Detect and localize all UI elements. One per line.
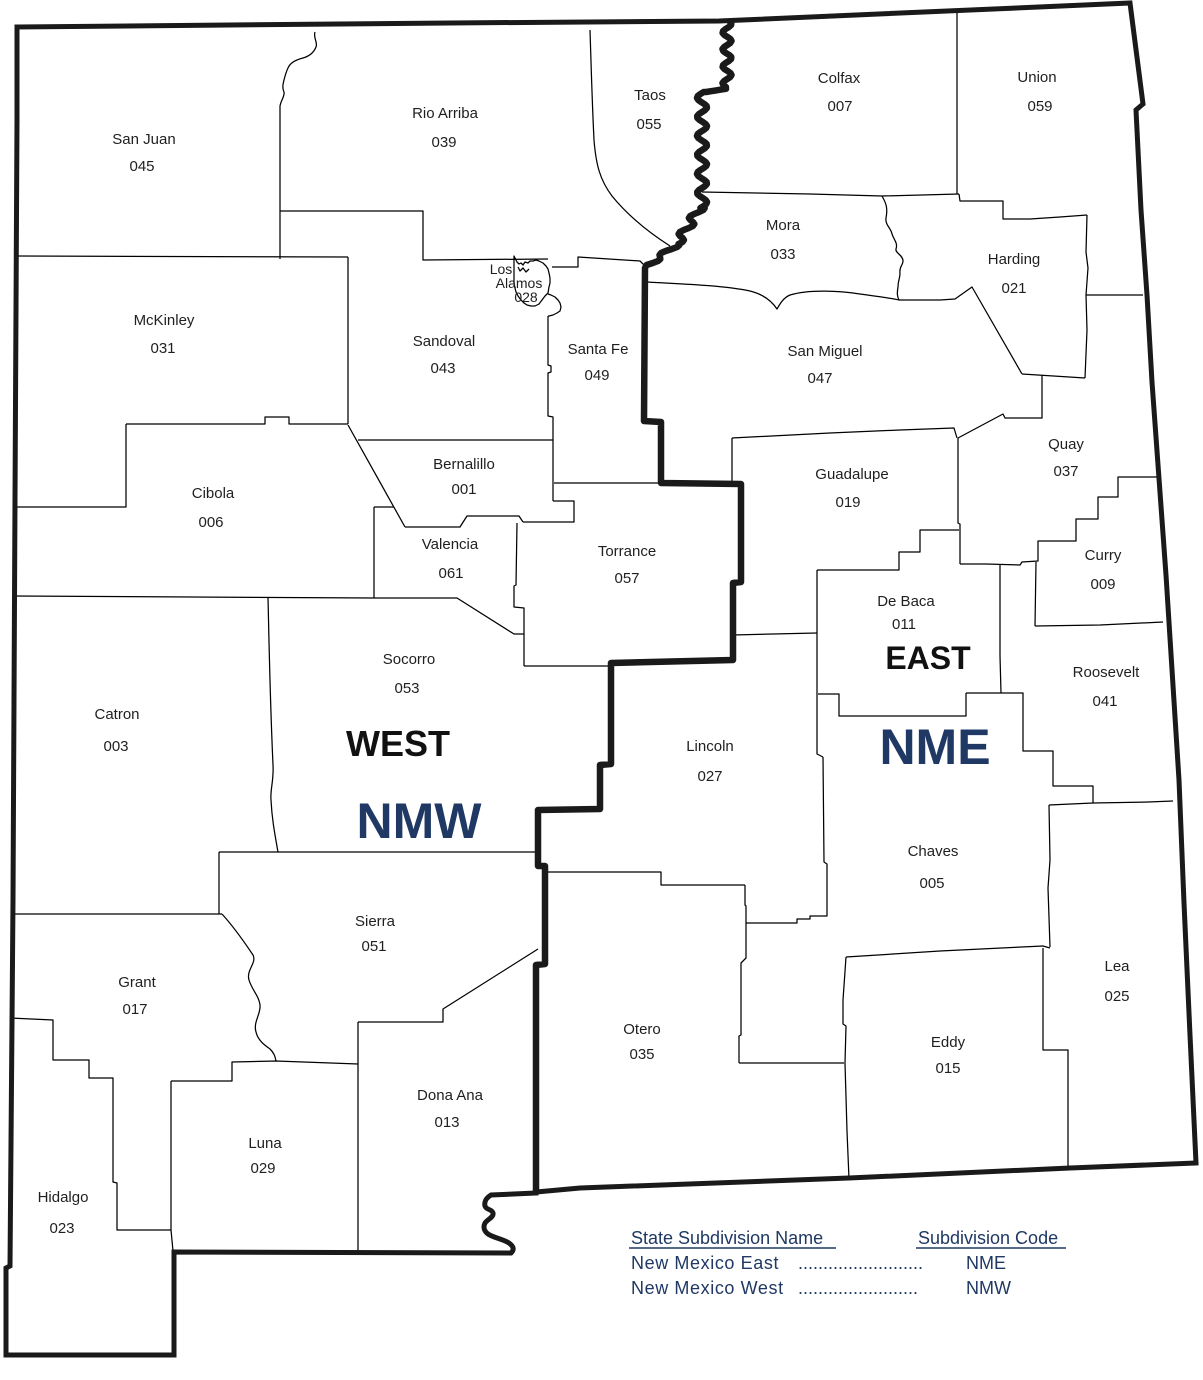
svg-text:Union: Union: [1017, 69, 1056, 86]
svg-text:017: 017: [122, 1001, 147, 1018]
svg-text:035: 035: [629, 1046, 654, 1063]
svg-text:055: 055: [636, 116, 661, 133]
svg-text:Hidalgo: Hidalgo: [38, 1189, 89, 1206]
svg-text:NME: NME: [966, 1253, 1006, 1273]
svg-text:Colfax: Colfax: [818, 70, 861, 87]
svg-text:025: 025: [1104, 988, 1129, 1005]
svg-text:023: 023: [49, 1220, 74, 1237]
svg-text:Otero: Otero: [623, 1021, 661, 1038]
svg-text:New Mexico East: New Mexico East: [631, 1253, 779, 1273]
svg-text:Torrance: Torrance: [598, 543, 656, 560]
svg-text:005: 005: [919, 875, 944, 892]
svg-text:049: 049: [584, 367, 609, 384]
svg-text:011: 011: [892, 616, 916, 633]
svg-text:Quay: Quay: [1048, 436, 1084, 453]
svg-text:State Subdivision Name: State Subdivision Name: [631, 1228, 823, 1248]
svg-text:Valencia: Valencia: [422, 536, 479, 553]
svg-text:053: 053: [394, 680, 419, 697]
svg-text:Harding: Harding: [988, 251, 1041, 268]
svg-text:001: 001: [451, 481, 476, 498]
svg-text:003: 003: [103, 738, 128, 755]
svg-text:021: 021: [1001, 280, 1026, 297]
svg-text:006: 006: [198, 514, 223, 531]
svg-text:Sierra: Sierra: [355, 913, 396, 930]
svg-text:Eddy: Eddy: [931, 1034, 966, 1051]
svg-text:Lea: Lea: [1104, 958, 1130, 975]
svg-text:Sandoval: Sandoval: [413, 333, 476, 350]
svg-text:San Miguel: San Miguel: [787, 343, 862, 360]
svg-text:NMW: NMW: [357, 793, 483, 849]
svg-text:045: 045: [129, 158, 154, 175]
svg-text:New Mexico West: New Mexico West: [631, 1278, 784, 1298]
svg-text:027: 027: [697, 768, 722, 785]
svg-text:Subdivision Code: Subdivision Code: [918, 1228, 1058, 1248]
svg-text:McKinley: McKinley: [134, 312, 195, 329]
svg-text:043: 043: [430, 360, 455, 377]
svg-text:037: 037: [1053, 463, 1078, 480]
svg-text:Lincoln: Lincoln: [686, 738, 734, 755]
svg-text:Dona Ana: Dona Ana: [417, 1087, 484, 1104]
svg-text:De Baca: De Baca: [877, 593, 935, 610]
svg-text:Mora: Mora: [766, 217, 801, 234]
svg-text:041: 041: [1092, 693, 1117, 710]
svg-text:Chaves: Chaves: [908, 843, 959, 860]
svg-text:047: 047: [807, 370, 832, 387]
svg-text:Socorro: Socorro: [383, 651, 436, 668]
svg-text:Taos: Taos: [634, 87, 666, 104]
svg-text:009: 009: [1090, 576, 1115, 593]
svg-text:Catron: Catron: [94, 706, 139, 723]
svg-text:........................: ........................: [798, 1278, 918, 1298]
svg-text:Bernalillo: Bernalillo: [433, 456, 495, 473]
svg-text:Rio Arriba: Rio Arriba: [412, 105, 479, 122]
svg-text:.........................: .........................: [798, 1253, 923, 1273]
svg-text:031: 031: [150, 340, 175, 357]
svg-text:051: 051: [361, 938, 386, 955]
svg-text:057: 057: [614, 570, 639, 587]
svg-text:028: 028: [514, 289, 538, 305]
svg-text:Guadalupe: Guadalupe: [815, 466, 888, 483]
svg-text:Luna: Luna: [248, 1135, 282, 1152]
svg-text:Santa Fe: Santa Fe: [568, 341, 629, 358]
svg-text:029: 029: [250, 1160, 275, 1177]
svg-text:Roosevelt: Roosevelt: [1073, 664, 1141, 681]
svg-text:033: 033: [770, 246, 795, 263]
svg-text:007: 007: [827, 98, 852, 115]
svg-text:019: 019: [835, 494, 860, 511]
svg-text:061: 061: [438, 565, 463, 582]
svg-text:013: 013: [434, 1114, 459, 1131]
svg-text:San Juan: San Juan: [112, 131, 175, 148]
svg-text:015: 015: [935, 1060, 960, 1077]
svg-text:NMW: NMW: [966, 1278, 1011, 1298]
svg-text:WEST: WEST: [346, 723, 450, 764]
svg-text:Curry: Curry: [1085, 547, 1122, 564]
svg-text:Cibola: Cibola: [192, 485, 235, 502]
svg-text:059: 059: [1027, 98, 1052, 115]
svg-text:Grant: Grant: [118, 974, 156, 991]
svg-text:EAST: EAST: [885, 640, 971, 676]
svg-text:NME: NME: [879, 719, 990, 775]
svg-text:039: 039: [431, 134, 456, 151]
